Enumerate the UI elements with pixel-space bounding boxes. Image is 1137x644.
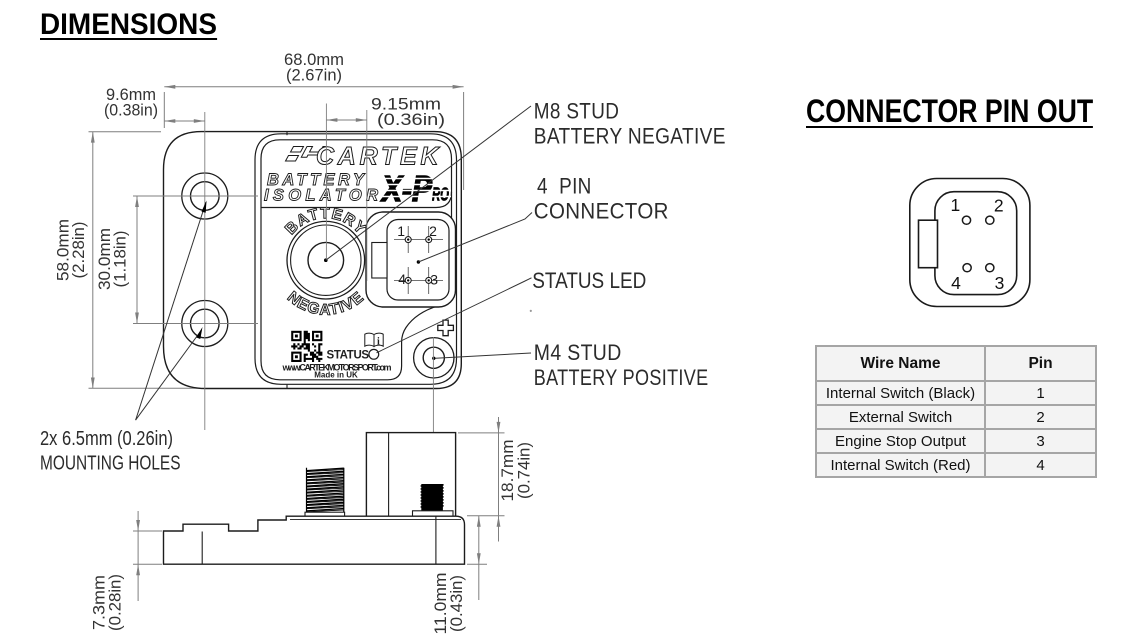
svg-text:4: 4 bbox=[951, 273, 961, 293]
svg-text:X-P: X-P bbox=[380, 168, 432, 209]
svg-text:(0.38in): (0.38in) bbox=[104, 101, 158, 120]
svg-text:(0.36in): (0.36in) bbox=[377, 110, 445, 129]
svg-text:MOUNTING HOLES: MOUNTING HOLES bbox=[40, 453, 181, 475]
svg-text:M8 STUD: M8 STUD bbox=[534, 99, 619, 124]
svg-text:(0.43in): (0.43in) bbox=[447, 575, 466, 632]
svg-text:4 PIN: 4 PIN bbox=[537, 174, 592, 199]
svg-text:2: 2 bbox=[429, 223, 437, 239]
svg-text:2: 2 bbox=[994, 196, 1004, 216]
svg-text:(2.28in): (2.28in) bbox=[69, 222, 88, 279]
svg-text:STATUS: STATUS bbox=[327, 349, 370, 361]
svg-text:(2.67in): (2.67in) bbox=[286, 66, 342, 85]
svg-text:Made in UK: Made in UK bbox=[314, 371, 358, 380]
svg-text:CONNECTOR: CONNECTOR bbox=[534, 199, 669, 224]
svg-text:1: 1 bbox=[951, 195, 961, 215]
svg-text:(0.28in): (0.28in) bbox=[106, 574, 125, 631]
svg-text:M4 STUD: M4 STUD bbox=[534, 340, 622, 365]
svg-text:1: 1 bbox=[397, 223, 405, 239]
svg-text:(1.18in): (1.18in) bbox=[111, 231, 130, 288]
svg-text:2x 6.5mm (0.26in): 2x 6.5mm (0.26in) bbox=[40, 428, 173, 450]
svg-text:i: i bbox=[377, 337, 380, 348]
svg-text:BATTERY NEGATIVE: BATTERY NEGATIVE bbox=[534, 124, 726, 149]
svg-text:3: 3 bbox=[430, 271, 438, 287]
svg-text:BATTERY POSITIVE: BATTERY POSITIVE bbox=[534, 365, 709, 390]
svg-text:ISOLATOR: ISOLATOR bbox=[264, 187, 378, 205]
svg-text:STATUS LED: STATUS LED bbox=[532, 268, 646, 293]
svg-text:(0.74in): (0.74in) bbox=[515, 442, 534, 499]
svg-text:4: 4 bbox=[398, 271, 406, 287]
svg-text:3: 3 bbox=[995, 273, 1005, 293]
svg-text:RO: RO bbox=[432, 185, 449, 205]
